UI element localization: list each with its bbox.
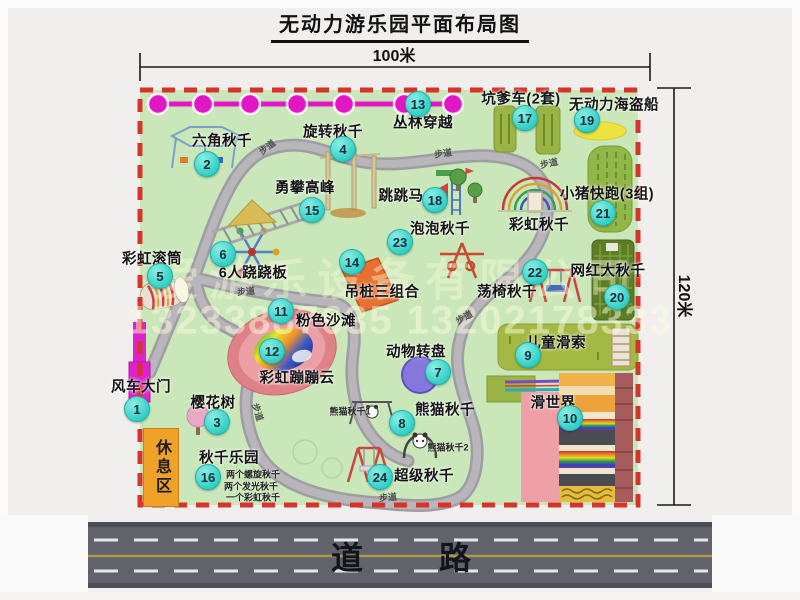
marker-11: 11 [268, 298, 294, 324]
walkway-label-6: 步道 [378, 490, 397, 505]
marker-20: 20 [604, 284, 630, 310]
label-4: 旋转秋千 [303, 121, 363, 142]
marker-24: 24 [367, 464, 393, 490]
marker-8: 8 [389, 410, 415, 436]
label-22: 荡椅秋千 [477, 281, 537, 302]
label-23: 泡泡秋千 [410, 218, 470, 239]
marker-4: 4 [330, 136, 356, 162]
label-8: 熊猫秋千 [415, 399, 475, 420]
marker-9: 9 [515, 342, 541, 368]
road-label: 道 路 [331, 533, 493, 579]
marker-22: 22 [522, 259, 548, 285]
marker-15: 15 [299, 197, 325, 223]
marker-10: 10 [557, 405, 583, 431]
marker-19: 19 [574, 107, 600, 133]
label-15: 勇攀高峰 [275, 177, 335, 198]
label-24: 超级秋千 [394, 465, 454, 486]
height-dimension-label: 120米 [674, 275, 698, 318]
label-14: 吊桩三组合 [345, 281, 420, 302]
label-11: 粉色沙滩 [296, 310, 356, 331]
marker-1: 1 [124, 396, 150, 422]
marker-13: 13 [405, 91, 431, 117]
label-panda-swing-2: 熊猫秋千2 [427, 441, 468, 454]
label-1: 风车大门 [111, 376, 171, 397]
walkway-label-4: 步道 [236, 284, 255, 299]
swing-park-note-3: 一个彩虹秋千 [226, 491, 280, 504]
marker-6: 6 [210, 241, 236, 267]
marker-16: 16 [195, 464, 221, 490]
label-20: 网红大秋千 [571, 260, 646, 281]
rest-area: 休息区 [143, 428, 179, 507]
label-panda-swing-1: 熊猫秋千1 [329, 405, 370, 418]
marker-17: 17 [512, 105, 538, 131]
marker-14: 14 [339, 249, 365, 275]
marker-5: 5 [147, 263, 173, 289]
walkway-label-2: 步道 [433, 145, 453, 160]
page-title: 无动力游乐园平面布局图 [271, 8, 529, 43]
label-rainbow-swing: 彩虹秋千 [509, 214, 569, 235]
label-18: 跳跳马 [379, 185, 424, 206]
marker-18: 18 [422, 187, 448, 213]
width-dimension-label: 100米 [373, 42, 416, 66]
marker-23: 23 [387, 229, 413, 255]
marker-12: 12 [259, 338, 285, 364]
label-12: 彩虹蹦蹦云 [260, 367, 335, 388]
marker-21: 21 [590, 200, 616, 226]
marker-2: 2 [194, 151, 220, 177]
marker-7: 7 [425, 359, 451, 385]
label-2: 六角秋千 [192, 130, 252, 151]
page: 无动力游乐园平面布局图 100米 120米 爱游乐设备有限公司 13233887… [0, 0, 800, 600]
marker-3: 3 [204, 409, 230, 435]
